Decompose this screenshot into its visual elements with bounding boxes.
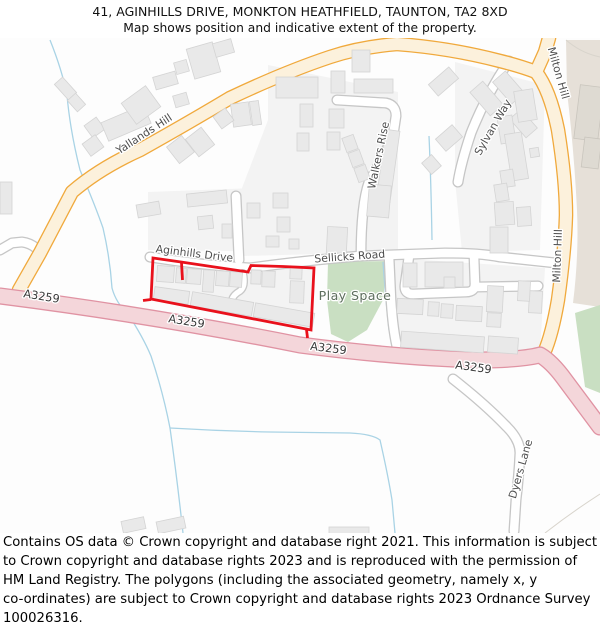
copyright-line: 100026316.	[0, 609, 600, 628]
building	[251, 270, 261, 284]
building	[352, 50, 370, 72]
building	[487, 313, 502, 328]
map-title-block: 41, AGINHILLS DRIVE, MONKTON HEATHFIELD,…	[0, 0, 600, 38]
building	[422, 155, 442, 175]
built-area	[566, 40, 600, 307]
building	[486, 286, 503, 313]
building	[174, 59, 190, 74]
building	[266, 236, 279, 247]
copyright-line: HM Land Registry. The polygons (includin…	[0, 571, 600, 590]
building	[494, 201, 515, 225]
property-extent-tick	[307, 330, 308, 339]
building	[289, 239, 299, 249]
minor-road	[0, 242, 36, 250]
road-label: Milton Hill	[550, 229, 565, 283]
boundary-line	[545, 494, 600, 533]
building	[230, 102, 251, 127]
copyright-line: Contains OS data © Crown copyright and d…	[0, 533, 600, 552]
stream	[429, 136, 432, 240]
minor-road	[236, 196, 239, 260]
building	[529, 147, 539, 157]
building	[329, 109, 344, 128]
road-label: Dyers Lane	[506, 438, 535, 501]
building	[277, 217, 290, 232]
building	[276, 77, 318, 98]
building	[456, 305, 483, 321]
map-canvas[interactable]: Yallands HillAginhills DriveSellicks Roa…	[0, 38, 600, 533]
building	[222, 224, 232, 238]
building	[327, 132, 340, 150]
building	[290, 281, 305, 303]
copyright-line: co-ordinates) are subject to Crown copyr…	[0, 590, 600, 609]
building	[82, 135, 104, 157]
building	[300, 104, 313, 127]
property-extent-tick	[182, 263, 183, 281]
building	[428, 67, 458, 96]
building	[156, 265, 174, 282]
building	[262, 271, 276, 287]
building	[441, 304, 454, 319]
building	[153, 71, 179, 90]
building	[517, 281, 530, 302]
building	[197, 215, 213, 229]
area-label: Play Space	[319, 288, 392, 303]
building	[581, 137, 600, 169]
building	[428, 302, 440, 317]
property-extent-tick	[143, 300, 151, 301]
building	[528, 291, 542, 314]
building	[121, 517, 146, 533]
building	[354, 79, 393, 93]
map-svg: Yallands HillAginhills DriveSellicks Roa…	[0, 38, 600, 533]
stream	[170, 428, 395, 533]
building	[444, 277, 455, 288]
building	[516, 207, 531, 227]
building	[331, 71, 345, 93]
building	[494, 183, 509, 202]
building	[202, 270, 215, 293]
building	[403, 263, 417, 287]
building	[397, 298, 424, 314]
building	[186, 269, 201, 285]
building	[215, 271, 229, 287]
copyright-line: to Crown copyright and database rights 2…	[0, 552, 600, 571]
building	[247, 203, 260, 218]
building	[173, 92, 190, 107]
building	[487, 336, 518, 354]
copyright-notice: Contains OS data © Crown copyright and d…	[0, 533, 600, 625]
building	[297, 133, 309, 151]
building	[490, 227, 508, 253]
map-subtitle: Map shows position and indicative extent…	[0, 20, 600, 36]
building	[229, 272, 242, 288]
property-address-title: 41, AGINHILLS DRIVE, MONKTON HEATHFIELD,…	[0, 0, 600, 20]
building	[0, 182, 12, 214]
building	[273, 193, 288, 208]
building	[212, 39, 234, 58]
building	[156, 516, 186, 533]
green-space	[575, 305, 600, 393]
